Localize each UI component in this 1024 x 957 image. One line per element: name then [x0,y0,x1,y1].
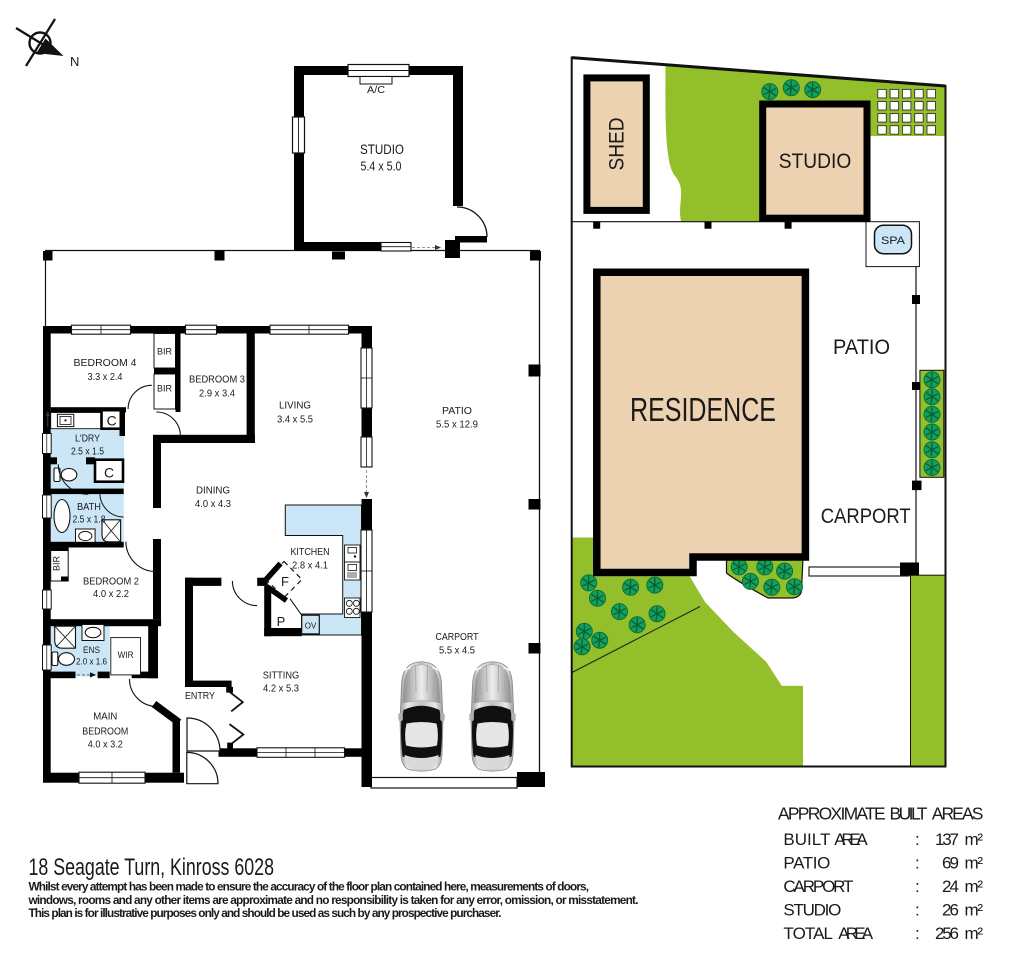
svg-text:2.9 x 3.4: 2.9 x 3.4 [199,389,235,400]
svg-text:26: 26 [942,901,959,920]
svg-text:m²: m² [965,877,984,896]
svg-text:4.0 x 4.3: 4.0 x 4.3 [195,499,231,510]
svg-text:RESIDENCE: RESIDENCE [630,391,776,428]
svg-text:m²: m² [965,901,984,920]
svg-text:BEDROOM 3: BEDROOM 3 [189,375,245,386]
svg-text:CARPORT: CARPORT [821,505,911,528]
svg-text:SITTING: SITTING [263,671,300,682]
svg-text:2.5 x 1.5: 2.5 x 1.5 [71,447,104,458]
svg-text:ENS: ENS [83,645,100,655]
svg-text:4.2 x 5.3: 4.2 x 5.3 [263,684,299,695]
svg-text:STUDIO: STUDIO [779,150,852,173]
svg-text:This plan is for illustrative: This plan is for illustrative purposes o… [29,906,502,920]
svg-text:BATH: BATH [77,502,101,513]
svg-text:m²: m² [965,830,984,849]
svg-text:P: P [277,614,286,629]
svg-text::: : [915,901,920,920]
svg-text:BIR: BIR [157,347,172,358]
svg-text:SPA: SPA [881,235,906,247]
svg-text:2.0 x 1.6: 2.0 x 1.6 [76,657,107,667]
svg-text:5.5 x 4.5: 5.5 x 4.5 [439,646,475,657]
svg-text:5.5 x 12.9: 5.5 x 12.9 [436,420,478,431]
svg-text:BEDROOM 4: BEDROOM 4 [74,358,137,369]
svg-text:TOTAL: TOTAL [783,924,833,943]
svg-text:3.4 x 5.5: 3.4 x 5.5 [277,415,313,426]
svg-text:L'DRY: L'DRY [75,434,100,445]
svg-text::: : [915,877,920,896]
svg-text:3.3 x 2.4: 3.3 x 2.4 [88,372,123,383]
svg-text:Whilst every attempt has been: Whilst every attempt has been made to en… [29,880,590,894]
svg-text:BEDROOM: BEDROOM [82,727,128,738]
svg-text:4.0 x 2.2: 4.0 x 2.2 [93,589,129,600]
svg-text:OV: OV [305,622,317,631]
svg-text:137: 137 [935,830,959,849]
svg-text:F: F [281,574,289,589]
svg-text:windows, rooms and any other i: windows, rooms and any other items are a… [28,893,639,907]
svg-text:m²: m² [965,924,984,943]
svg-text:256: 256 [935,924,959,943]
svg-text:18 Seagate Turn, Kinross 6028: 18 Seagate Turn, Kinross 6028 [29,854,275,881]
svg-text:AREAS: AREAS [932,804,984,824]
svg-text:A/C: A/C [367,84,385,96]
svg-text:MAIN: MAIN [93,712,117,723]
svg-text:PATIO: PATIO [833,336,890,359]
svg-text:BIR: BIR [52,556,62,572]
svg-text:C: C [104,465,114,481]
svg-text:CARPORT: CARPORT [436,632,480,643]
svg-text:DINING: DINING [196,486,230,497]
svg-text:BIR: BIR [157,384,172,395]
svg-text:CARPORT: CARPORT [783,877,853,896]
svg-text:PATIO: PATIO [783,854,830,873]
svg-text:ENTRY: ENTRY [185,691,215,702]
svg-text:STUDIO: STUDIO [783,901,841,920]
svg-text:STUDIO: STUDIO [360,142,404,157]
svg-text::: : [915,830,920,849]
svg-text:BUILT: BUILT [890,804,928,824]
svg-text:WIR: WIR [118,650,134,660]
svg-text:N: N [70,54,79,69]
svg-text:AREA: AREA [838,924,873,943]
svg-text:SHED: SHED [606,118,629,171]
svg-text:AREA: AREA [834,830,868,849]
svg-text:PATIO: PATIO [442,406,472,417]
svg-text:C: C [107,413,117,429]
svg-text:APPROXIMATE: APPROXIMATE [778,804,886,824]
svg-text:2.8 x 4.1: 2.8 x 4.1 [292,561,328,572]
svg-text:4.0 x 3.2: 4.0 x 3.2 [88,740,123,751]
svg-text:BUILT: BUILT [783,830,830,849]
svg-text:BEDROOM 2: BEDROOM 2 [83,577,139,588]
svg-text:LIVING: LIVING [279,401,311,412]
svg-text:m²: m² [965,854,984,873]
svg-text::: : [915,924,920,943]
svg-text::: : [915,854,920,873]
svg-text:5.4 x 5.0: 5.4 x 5.0 [361,159,402,174]
svg-text:KITCHEN: KITCHEN [291,547,330,558]
svg-text:69: 69 [942,854,959,873]
svg-text:24: 24 [942,877,959,896]
svg-text:2.5 x 1.8: 2.5 x 1.8 [73,515,106,526]
